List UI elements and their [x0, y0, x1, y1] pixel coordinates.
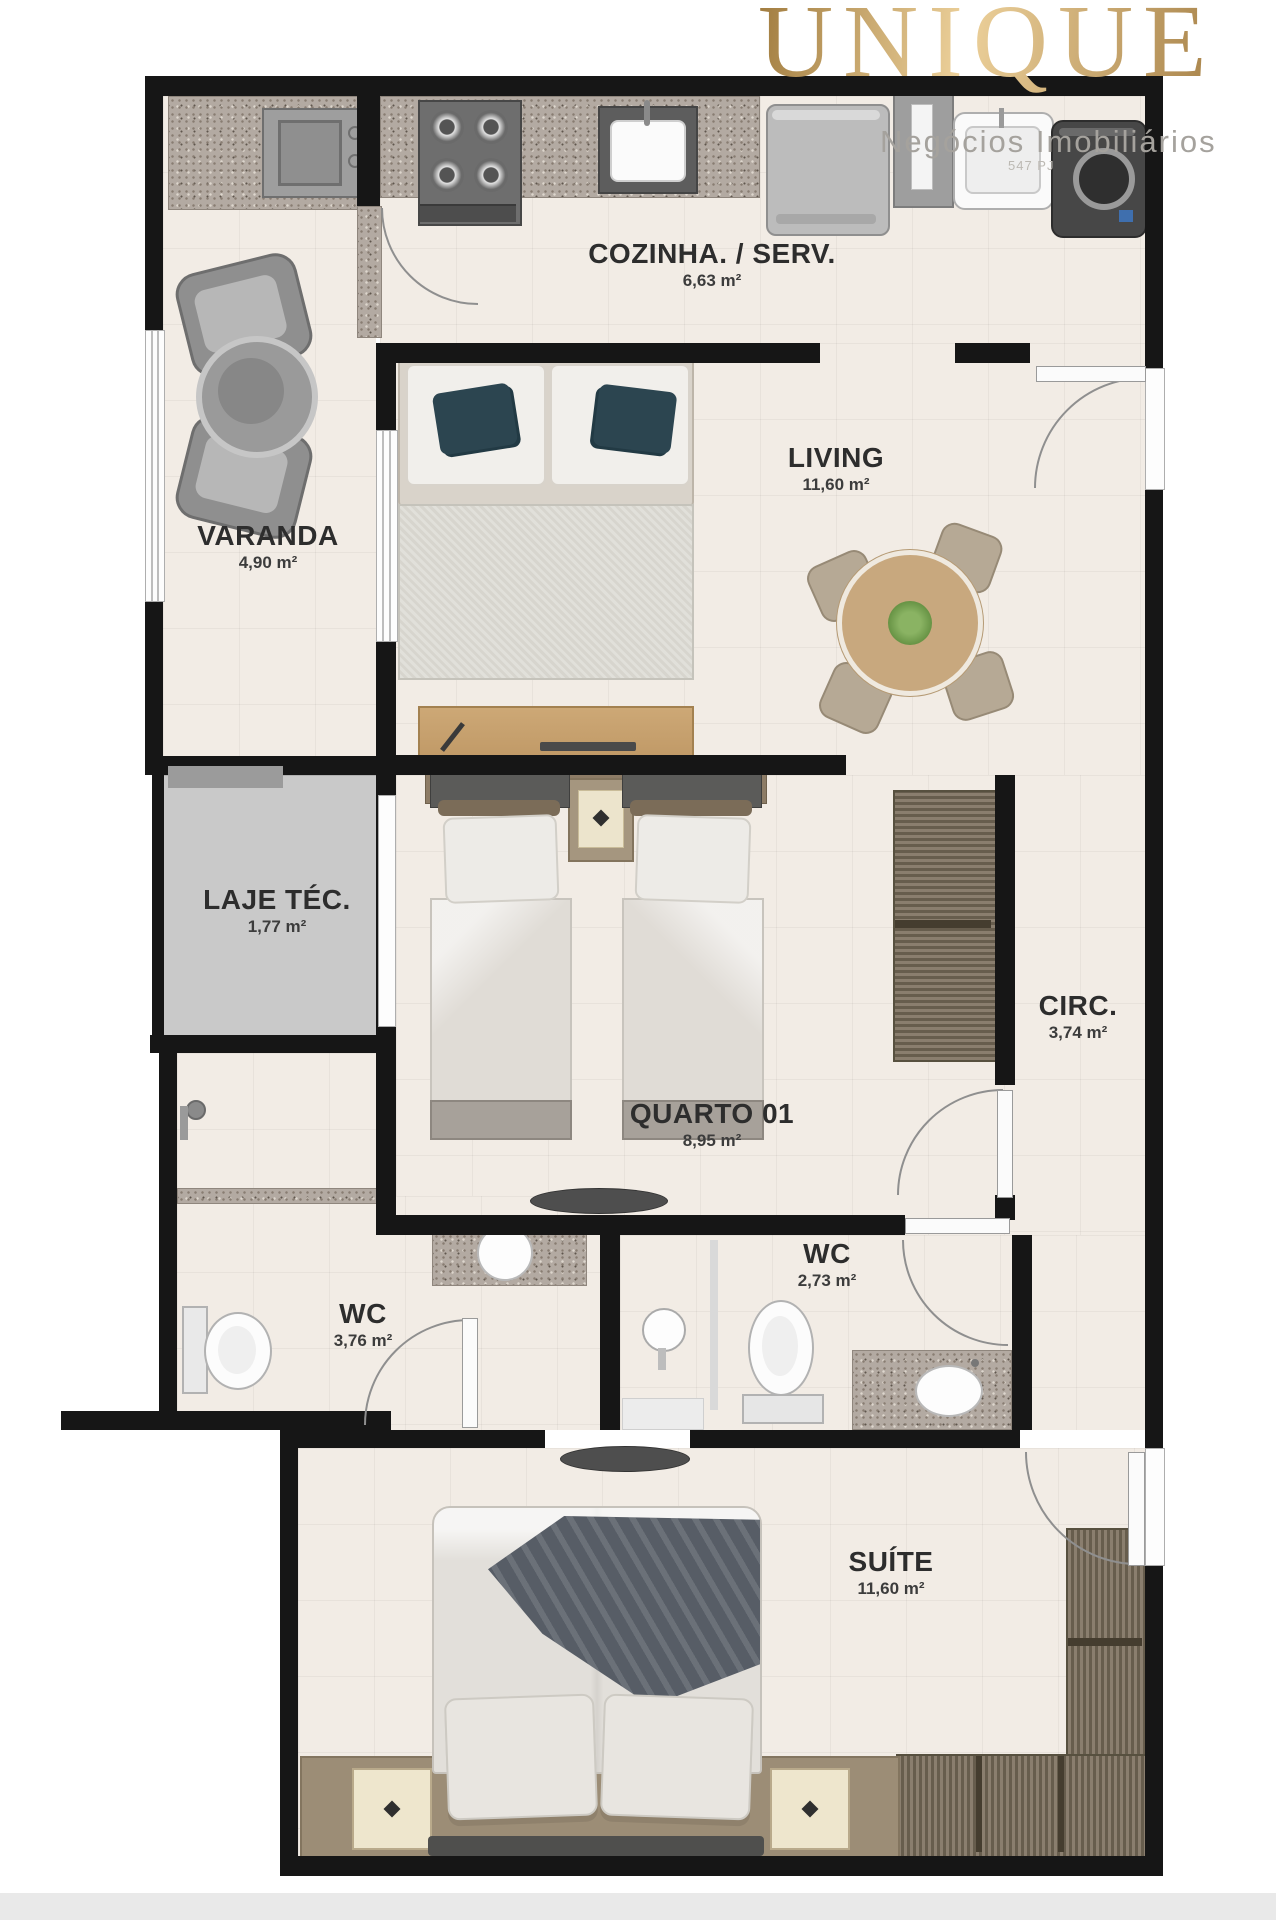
room-name: SUÍTE — [849, 1546, 934, 1578]
floor-plan-canvas: COZINHA. / SERV. 6,63 m² LIVING 11,60 m²… — [0, 0, 1276, 1920]
toilet-bowl — [762, 1316, 798, 1376]
entry-door-leaf — [1036, 366, 1146, 382]
stove-burner — [474, 158, 508, 192]
wc2-shelf — [622, 1398, 704, 1430]
toilet-tank — [742, 1394, 824, 1424]
stove-burner — [474, 110, 508, 144]
stove — [418, 100, 522, 226]
washer-label — [1119, 210, 1133, 222]
wall-bottom-left-stub — [61, 1411, 391, 1430]
room-area: 6,63 m² — [588, 271, 836, 291]
wc2-sink — [915, 1365, 983, 1417]
wardrobe-divider — [976, 1756, 982, 1852]
toilet-bowl — [218, 1326, 256, 1374]
wall-wc-left — [159, 1053, 177, 1430]
wall-right-b — [1145, 488, 1163, 1448]
room-name: WC — [334, 1298, 393, 1330]
sink-faucet — [644, 100, 650, 126]
wall-wc2-circ — [1012, 1235, 1032, 1430]
microwave — [262, 108, 372, 198]
bed-pillow — [600, 1693, 754, 1820]
varanda-window — [145, 330, 165, 602]
fridge — [766, 104, 890, 236]
wall-quarto-bottom — [376, 1215, 905, 1235]
plant — [888, 601, 932, 645]
wall-kitchen-living-a — [380, 343, 820, 363]
room-area: 1,77 m² — [203, 917, 351, 937]
laje-tec-ledge — [168, 766, 283, 788]
side-table — [196, 336, 318, 458]
suite-doormat — [560, 1446, 690, 1472]
wc2-counter — [852, 1350, 1012, 1430]
room-name: LAJE TÉC. — [203, 884, 351, 916]
wardrobe — [893, 790, 997, 1062]
wardrobe-divider — [1068, 1638, 1142, 1646]
wall-right-c — [1145, 1564, 1163, 1876]
kitchen-sink — [598, 106, 698, 194]
room-label-varanda: VARANDA 4,90 m² — [197, 520, 338, 573]
wall-left-lower — [145, 600, 163, 775]
bed-pillow — [444, 1693, 598, 1820]
tray — [540, 742, 636, 751]
sofa-pillow — [432, 382, 519, 455]
nightstand-handle — [384, 1801, 401, 1818]
room-label-quarto-01: QUARTO 01 8,95 m² — [630, 1098, 794, 1151]
double-bed-headboard — [428, 1836, 764, 1856]
wall-quarto-circ-b — [995, 1195, 1015, 1220]
shower-partition — [177, 1188, 378, 1204]
logo-tagline: Negócios Imobiliários — [880, 124, 1217, 160]
suite-door-leaf — [1128, 1452, 1145, 1566]
wall-suite-top-a — [280, 1430, 545, 1448]
wall-kitchen-stub — [357, 96, 380, 206]
toilet — [748, 1300, 814, 1396]
room-name: CIRC. — [1039, 990, 1118, 1022]
laje-window — [378, 795, 396, 1027]
footer-bar — [0, 1893, 1276, 1920]
toilet — [204, 1312, 272, 1390]
wardrobe-divider — [1058, 1756, 1064, 1852]
wall-left-upper — [145, 96, 163, 330]
room-area: 3,76 m² — [334, 1331, 393, 1351]
wall-quarto-circ-a — [995, 775, 1015, 1085]
wall-suite-bottom — [280, 1856, 1163, 1876]
sink-basin — [610, 120, 686, 182]
room-name: WC — [798, 1238, 857, 1270]
wall-living-quarto — [376, 755, 846, 775]
logo-unique: UNIQUE — [758, 0, 1217, 101]
pedestal-stem — [658, 1348, 666, 1370]
wc1-door-leaf — [462, 1318, 478, 1428]
wall-laje-left — [152, 775, 164, 1035]
sofa-pillow — [593, 383, 678, 454]
shower-head — [186, 1100, 206, 1120]
fridge-base — [776, 214, 876, 224]
single-bed-foot — [430, 1100, 572, 1140]
rug — [398, 504, 694, 680]
room-area: 8,95 m² — [630, 1131, 794, 1151]
stove-burner — [430, 158, 464, 192]
stove-burner — [430, 110, 464, 144]
wardrobe-divider — [895, 920, 991, 928]
wall-wc-divider — [600, 1235, 620, 1430]
room-label-suite: SUÍTE 11,60 m² — [849, 1546, 934, 1599]
single-bed-duvet — [430, 898, 572, 1108]
wall-kitchen-living-b — [955, 343, 1030, 363]
single-bed-pillow — [635, 814, 752, 904]
microwave-window — [278, 120, 342, 186]
pedestal-sink — [642, 1308, 686, 1352]
room-name: COZINHA. / SERV. — [588, 238, 836, 270]
suite-wardrobe-row — [896, 1754, 1147, 1858]
room-name: VARANDA — [197, 520, 338, 552]
room-name: QUARTO 01 — [630, 1098, 794, 1130]
nightstand — [352, 1768, 432, 1850]
room-area: 3,74 m² — [1039, 1023, 1118, 1043]
living-sliding-door — [376, 430, 398, 642]
wall-suite-top-b — [690, 1430, 1020, 1448]
logo-registry: 547 PJ — [1008, 158, 1054, 173]
entry-door-gap — [1145, 368, 1165, 490]
nightstand-handle — [802, 1801, 819, 1818]
room-label-cozinha: COZINHA. / SERV. 6,63 m² — [588, 238, 836, 291]
remote — [440, 722, 465, 752]
shower-floor — [177, 1053, 376, 1196]
fridge-top — [772, 110, 880, 120]
room-area: 4,90 m² — [197, 553, 338, 573]
wc2-partition — [710, 1240, 718, 1410]
shower-arm — [180, 1106, 188, 1140]
wc2-door-leaf — [905, 1218, 1010, 1234]
wall-laje-bottom — [150, 1035, 376, 1053]
room-label-living: LIVING 11,60 m² — [788, 442, 884, 495]
room-label-laje-tec: LAJE TÉC. 1,77 m² — [203, 884, 351, 937]
wall-varanda-living-a — [376, 343, 396, 430]
nightstand — [770, 1768, 850, 1850]
room-label-wc-social: WC 3,76 m² — [334, 1298, 393, 1351]
quarto-door-leaf — [997, 1090, 1013, 1198]
side-table-top — [218, 358, 284, 424]
dining-table — [837, 550, 983, 696]
single-bed-duvet — [622, 898, 764, 1108]
room-name: LIVING — [788, 442, 884, 474]
room-area: 11,60 m² — [849, 1579, 934, 1599]
suite-door-gap — [1145, 1448, 1165, 1566]
single-bed-pillow — [443, 814, 560, 904]
bedroom-doormat — [530, 1188, 668, 1214]
wc2-faucet — [971, 1359, 979, 1367]
room-area: 11,60 m² — [788, 475, 884, 495]
room-label-circ: CIRC. 3,74 m² — [1039, 990, 1118, 1043]
room-area: 2,73 m² — [798, 1271, 857, 1291]
room-label-wc-suite: WC 2,73 m² — [798, 1238, 857, 1291]
counter-return — [357, 206, 382, 338]
wall-suite-left — [280, 1448, 298, 1876]
stove-panel — [420, 204, 516, 222]
